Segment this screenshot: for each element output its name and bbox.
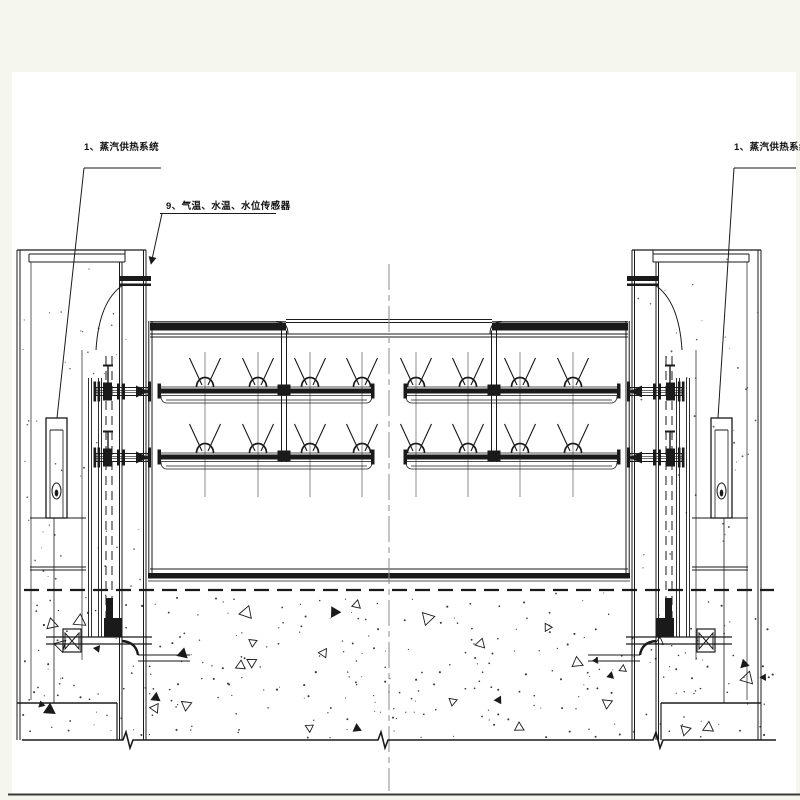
paper-area (12, 72, 796, 795)
engineering-drawing-page: 1、蒸汽供热系统 9、气温、水温、水位传感器 1、蒸汽供热系统 (0, 0, 800, 800)
label-steam-system-right: 1、蒸汽供热系统 (734, 141, 800, 153)
label-steam-system-left: 1、蒸汽供热系统 (84, 141, 159, 153)
gate-steam-heating-elevation: 1、蒸汽供热系统 9、气温、水温、水位传感器 1、蒸汽供热系统 (0, 0, 800, 800)
label-sensors: 9、气温、水温、水位传感器 (166, 200, 291, 212)
